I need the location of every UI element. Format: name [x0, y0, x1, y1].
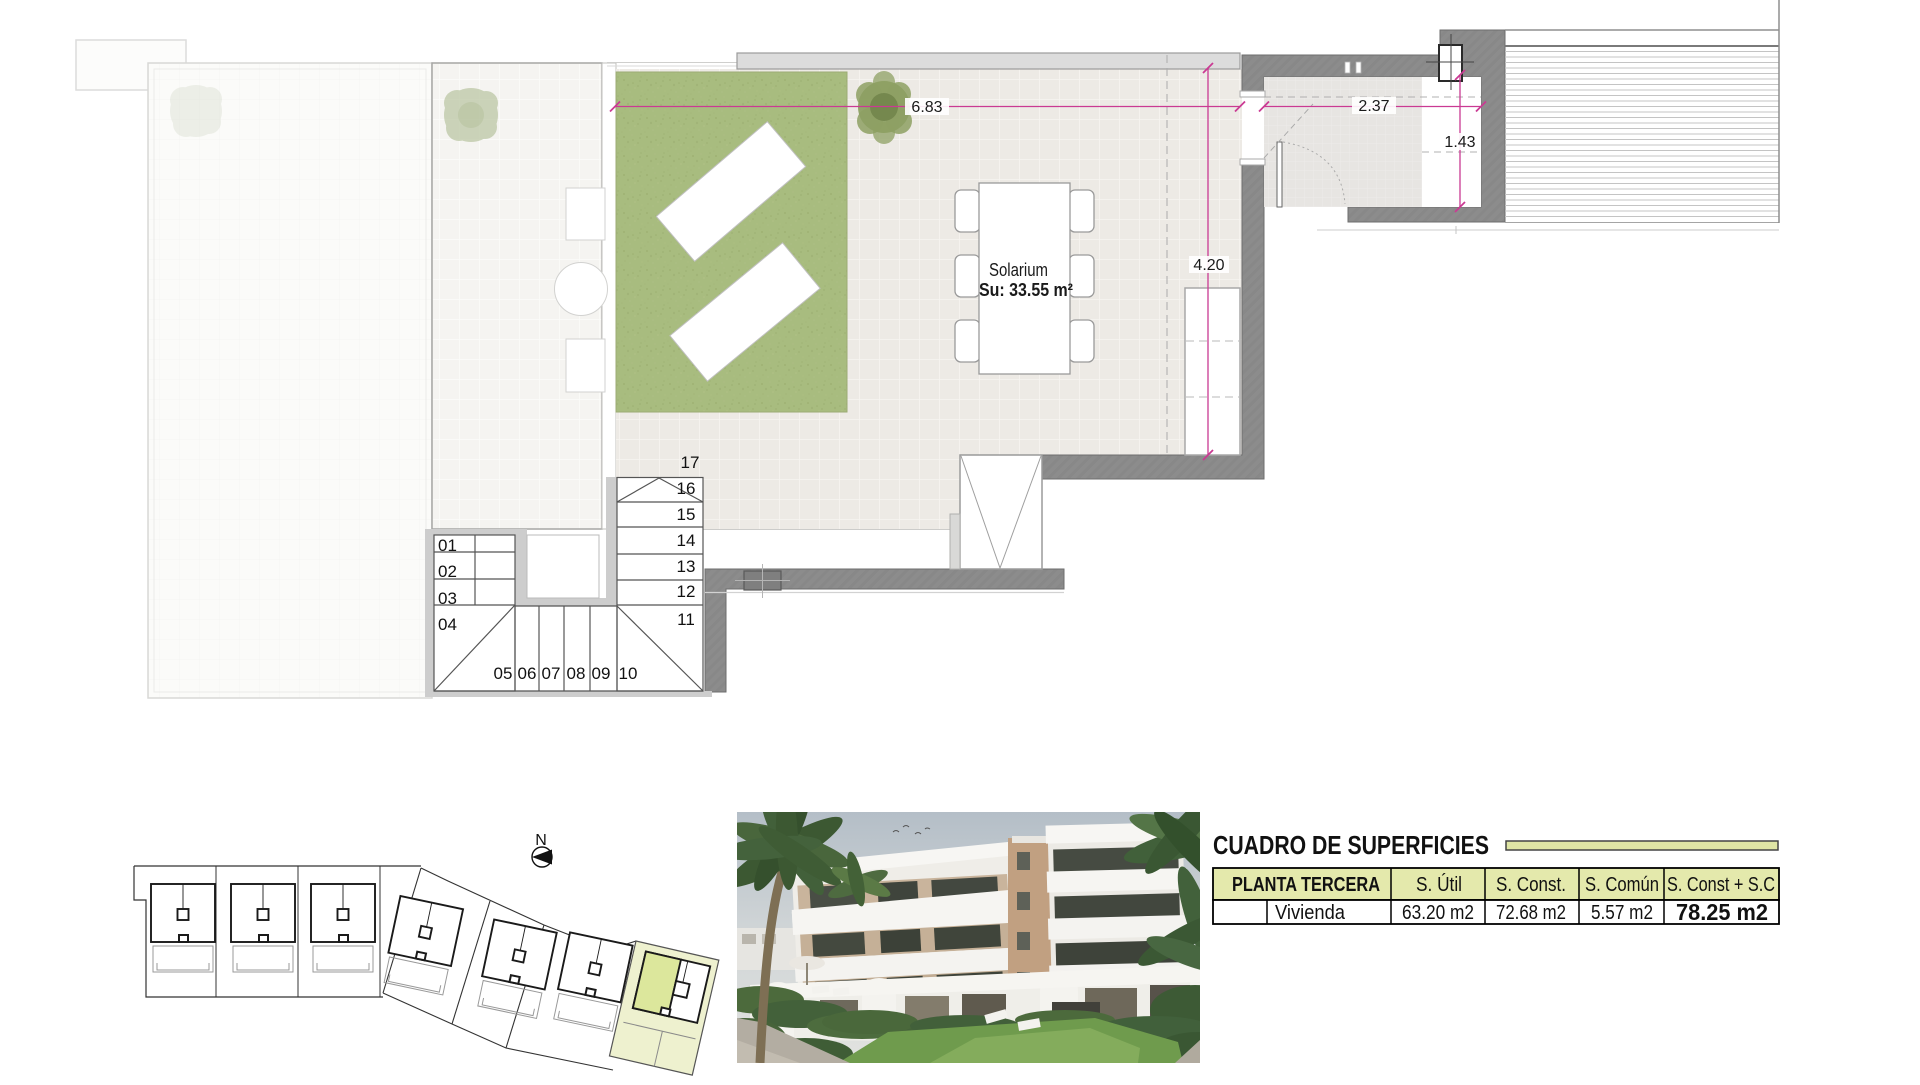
svg-text:16: 16: [677, 479, 696, 498]
svg-text:S. Const.: S. Const.: [1496, 874, 1566, 896]
svg-text:Vivienda: Vivienda: [1275, 902, 1346, 924]
svg-text:02: 02: [438, 562, 457, 581]
svg-text:72.68 m2: 72.68 m2: [1496, 902, 1566, 924]
svg-text:S. Útil: S. Útil: [1416, 873, 1462, 896]
svg-text:Su: 33.55 m²: Su: 33.55 m²: [979, 280, 1073, 300]
svg-text:01: 01: [438, 536, 457, 555]
svg-text:5.57 m2: 5.57 m2: [1591, 902, 1653, 924]
svg-text:07: 07: [542, 664, 561, 683]
svg-text:4.20: 4.20: [1193, 257, 1224, 274]
svg-text:08: 08: [567, 664, 586, 683]
svg-text:09: 09: [592, 664, 611, 683]
svg-text:2.37: 2.37: [1358, 98, 1389, 115]
svg-text:6.83: 6.83: [911, 99, 942, 116]
svg-text:14: 14: [677, 531, 696, 550]
svg-text:63.20 m2: 63.20 m2: [1402, 902, 1474, 924]
svg-text:78.25 m2: 78.25 m2: [1676, 899, 1768, 925]
svg-text:15: 15: [677, 505, 696, 524]
svg-text:06: 06: [518, 664, 537, 683]
svg-text:PLANTA TERCERA: PLANTA TERCERA: [1232, 874, 1380, 896]
svg-text:04: 04: [438, 615, 457, 634]
svg-text:1.43: 1.43: [1444, 134, 1475, 151]
svg-text:CUADRO DE SUPERFICIES: CUADRO DE SUPERFICIES: [1213, 830, 1489, 860]
svg-text:S. Común: S. Común: [1585, 874, 1659, 896]
svg-text:05: 05: [494, 664, 513, 683]
svg-text:13: 13: [677, 557, 696, 576]
svg-text:03: 03: [438, 589, 457, 608]
svg-text:12: 12: [677, 582, 696, 601]
svg-text:S. Const + S.C: S. Const + S.C: [1667, 874, 1775, 896]
svg-text:10: 10: [619, 664, 638, 683]
svg-text:Solarium: Solarium: [989, 260, 1048, 280]
svg-text:17: 17: [681, 453, 700, 472]
svg-text:11: 11: [677, 610, 695, 629]
